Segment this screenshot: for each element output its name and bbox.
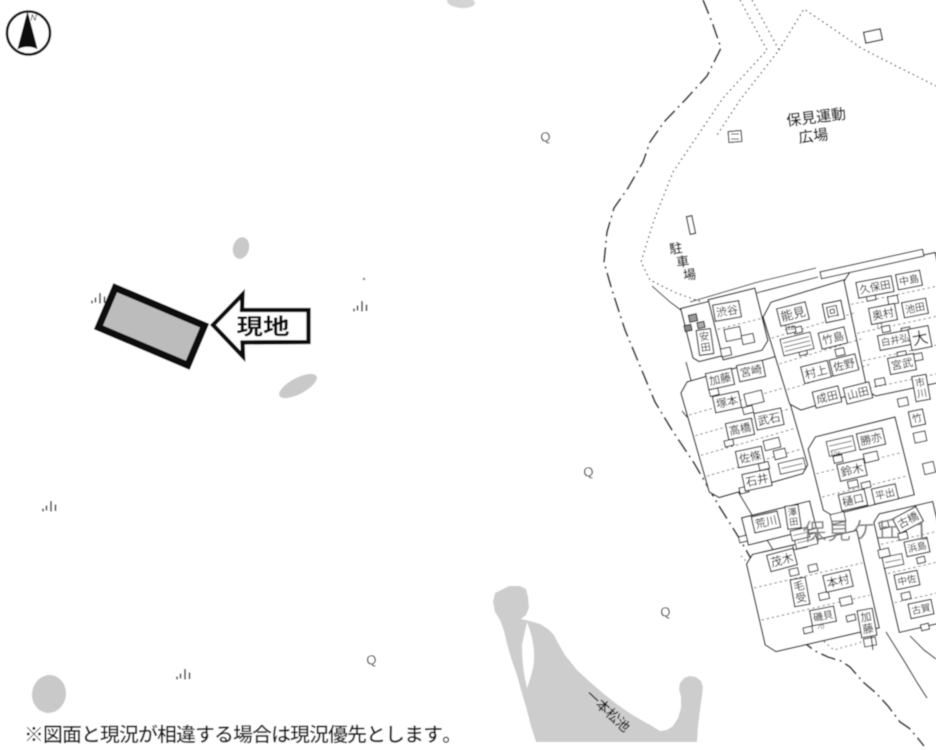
svg-text:Q: Q xyxy=(365,652,377,668)
svg-text:17: 17 xyxy=(876,324,883,330)
svg-text:N: N xyxy=(31,13,38,23)
svg-text:70: 70 xyxy=(817,624,825,631)
svg-text:Q: Q xyxy=(659,604,671,620)
svg-text:Q: Q xyxy=(582,464,594,480)
svg-text:Q: Q xyxy=(539,129,551,145)
svg-text:118: 118 xyxy=(784,325,795,332)
svg-text:106: 106 xyxy=(830,451,841,458)
